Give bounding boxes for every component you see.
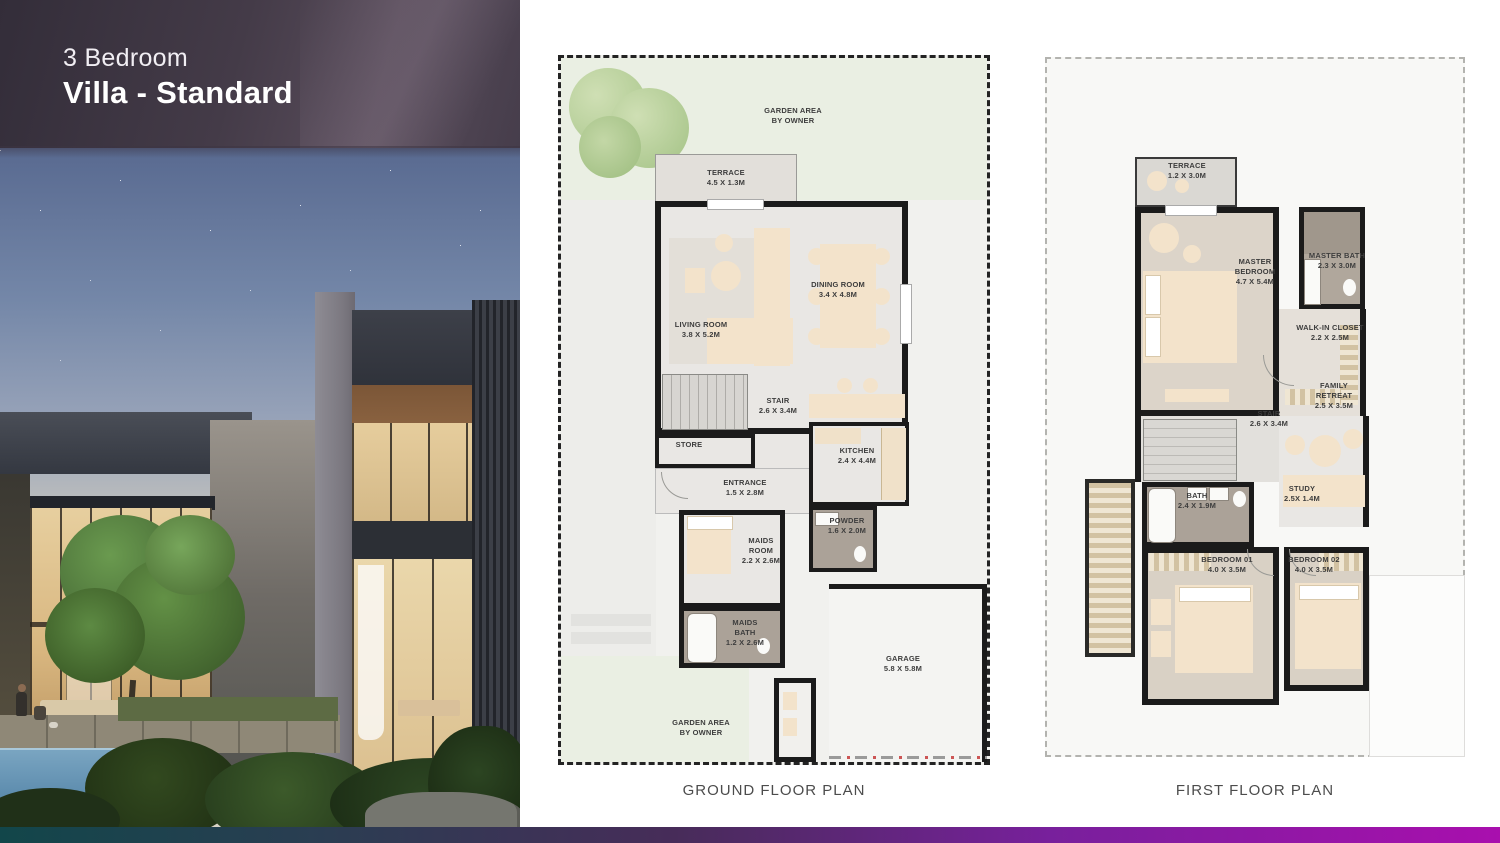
- kitchen-counter: [815, 428, 861, 444]
- room-label-kitchen: KITCHEN2.4 X 4.4M: [838, 446, 876, 466]
- pouf: [1183, 245, 1201, 263]
- right-spandrel: [352, 521, 474, 559]
- armchair: [1151, 599, 1171, 625]
- vestibule-planter: [783, 718, 797, 736]
- room-label-master-bath: MASTER BATH2.3 X 3.0M: [1305, 251, 1369, 271]
- stairs: [1143, 419, 1237, 481]
- maids-bed-pillow: [687, 516, 733, 530]
- round-table: [1309, 435, 1341, 467]
- window-gap: [1165, 205, 1217, 216]
- accent-gradient-bar: [0, 827, 1500, 843]
- kitchen-counter: [881, 428, 906, 500]
- room-label-stair: STAIR2.6 X 3.4M: [759, 396, 797, 416]
- toilet: [1233, 491, 1246, 507]
- dining-chair: [873, 328, 890, 345]
- dining-chair: [873, 248, 890, 265]
- brochure-page: 3 Bedroom Villa - Standard: [0, 0, 1500, 843]
- room-label-dining-room: DINING ROOM3.4 X 4.8M: [811, 280, 865, 300]
- grass-strip: [118, 697, 338, 721]
- courtyard-tree-canopy: [145, 515, 235, 595]
- family-retreat-wall: [1363, 416, 1369, 527]
- ground-floor-plan: GARDEN AREABY OWNER TERRACE4.5 X 1.3M LI…: [558, 55, 990, 765]
- title-overlay-fade: [0, 146, 520, 158]
- lounge-chair: [1285, 435, 1305, 455]
- dog: [49, 722, 58, 728]
- room-label-terrace: TERRACE1.2 X 3.0M: [1168, 161, 1206, 181]
- tree-icon: [579, 116, 641, 178]
- curtain: [358, 565, 384, 740]
- first-floor-caption: FIRST FLOOR PLAN: [1045, 782, 1465, 799]
- ground-floor-caption: GROUND FLOOR PLAN: [558, 782, 990, 799]
- stepping-slab: [571, 632, 651, 644]
- bar-stool: [863, 378, 878, 393]
- bathtub: [687, 613, 717, 663]
- bathtub: [1148, 488, 1176, 543]
- bench: [1165, 389, 1229, 402]
- room-label-garden-top: GARDEN AREABY OWNER: [764, 106, 822, 126]
- dining-table-interior: [398, 700, 460, 716]
- toilet: [854, 546, 866, 562]
- side-table: [715, 234, 733, 252]
- room-label-terrace: TERRACE4.5 X 1.3M: [707, 168, 745, 188]
- armchair: [685, 268, 705, 293]
- room-label-maids-bath: MAIDS BATH1.2 X 2.6M: [724, 618, 766, 648]
- chaise-chair: [1149, 223, 1179, 253]
- breakfast-bar: [809, 394, 905, 418]
- room-label-garage: GARAGE5.8 X 5.8M: [884, 654, 922, 674]
- window-gap: [900, 284, 912, 344]
- rock: [365, 792, 520, 827]
- dining-chair: [808, 328, 825, 345]
- stairs: [662, 374, 748, 430]
- bed-pillow: [1179, 587, 1251, 602]
- room-label-bath: BATH2.4 X 1.9M: [1178, 491, 1216, 511]
- bar-stool: [837, 378, 852, 393]
- side-yard: [561, 200, 656, 658]
- courtyard-tree-canopy: [45, 588, 145, 683]
- dining-chair: [873, 288, 890, 305]
- room-label-family-retreat: FAMILY RETREAT2.5 X 3.5M: [1305, 381, 1363, 411]
- garage-wall-top: [829, 584, 987, 589]
- room-label-garden-bottom: GARDEN AREABY OWNER: [672, 718, 730, 738]
- plot-line-red-dashes: [829, 756, 987, 759]
- first-floor-plan: TERRACE1.2 X 3.0M MASTER BEDROOM4.7 X 5.…: [1045, 57, 1465, 757]
- coffee-table: [711, 261, 741, 291]
- stair-wall: [1135, 416, 1141, 482]
- bed-pillow: [1299, 585, 1359, 600]
- roof-void: [1369, 575, 1465, 757]
- room-label-powder: POWDER1.6 X 2.0M: [828, 516, 866, 536]
- lounge-chair: [1343, 429, 1363, 449]
- page-title: Villa - Standard: [63, 75, 293, 111]
- room-label-bedroom-02: BEDROOM 024.0 X 3.5M: [1288, 555, 1340, 575]
- right-building-band: [352, 310, 474, 388]
- room-label-study: STUDY2.5X 1.4M: [1284, 484, 1320, 504]
- garden-area-bottom: [561, 656, 749, 762]
- person-head: [18, 684, 26, 692]
- person-by-pool: [16, 692, 27, 716]
- bed-pillow: [1145, 317, 1161, 357]
- room-label-master-bedroom: MASTER BEDROOM4.7 X 5.4M: [1222, 257, 1288, 287]
- louver-pergola: [1085, 479, 1135, 657]
- villa-photo: [0, 0, 520, 827]
- garage-wall-right: [982, 584, 987, 762]
- toilet: [1343, 279, 1356, 296]
- room-label-entrance: ENTRANCE1.5 X 2.8M: [723, 478, 766, 498]
- dining-chair: [808, 248, 825, 265]
- right-soffit-wood: [352, 385, 474, 425]
- store-room: [655, 434, 755, 468]
- master-bath-tile: [1304, 212, 1360, 254]
- armchair: [1151, 631, 1171, 657]
- title-overlay-streak: [300, 0, 520, 148]
- right-upper-window-mullions: [352, 423, 474, 523]
- child-by-pool: [34, 706, 46, 720]
- page-title-block: 3 Bedroom Villa - Standard: [63, 44, 293, 111]
- room-label-store: STORE: [676, 440, 703, 450]
- window-gap: [707, 199, 764, 210]
- stepping-slab: [571, 614, 651, 626]
- terrace-chair: [1147, 171, 1167, 191]
- room-label-bedroom-01: BEDROOM 014.0 X 3.5M: [1201, 555, 1253, 575]
- vestibule-planter: [783, 692, 797, 710]
- room-label-walkin-closet: WALK-IN CLOSET2.2 X 2.5M: [1287, 323, 1373, 343]
- unit-type-subtitle: 3 Bedroom: [63, 44, 293, 73]
- room-label-stair: STAIR2.6 X 3.4M: [1250, 409, 1288, 429]
- room-label-maids-room: MAIDS ROOM2.2 X 2.6M: [738, 536, 784, 566]
- room-label-living-room: LIVING ROOM3.8 X 5.2M: [675, 320, 728, 340]
- bed-pillow: [1145, 275, 1161, 315]
